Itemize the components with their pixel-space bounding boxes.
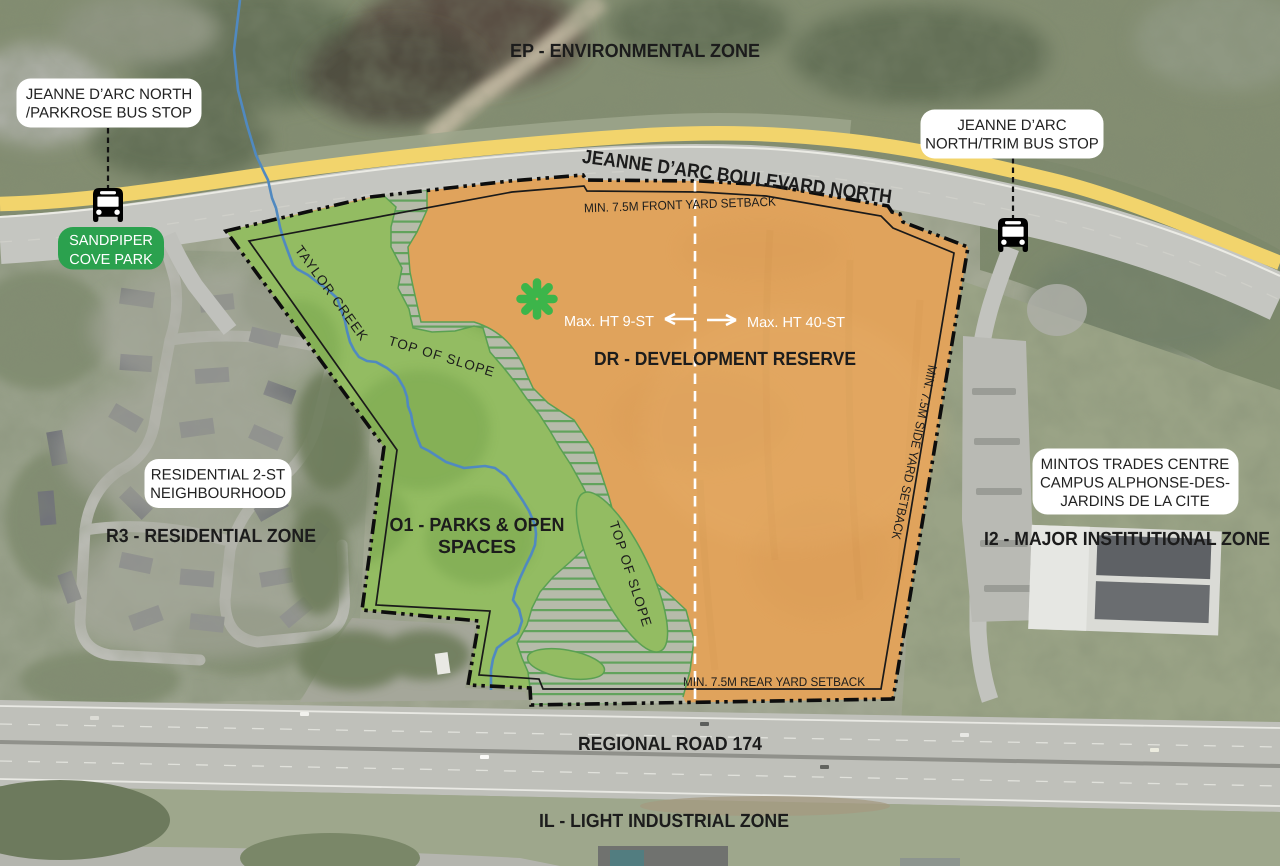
svg-text:NORTH/TRIM BUS STOP: NORTH/TRIM BUS STOP <box>925 136 1099 153</box>
svg-text:JEANNE D’ARC: JEANNE D’ARC <box>957 117 1066 134</box>
svg-text:DR - DEVELOPMENT RESERVE: DR - DEVELOPMENT RESERVE <box>594 349 856 370</box>
svg-text:O1 - PARKS & OPEN: O1 - PARKS & OPEN <box>390 515 565 536</box>
svg-text:EP - ENVIRONMENTAL ZONE: EP - ENVIRONMENTAL ZONE <box>510 41 760 62</box>
svg-text:CAMPUS ALPHONSE-DES-: CAMPUS ALPHONSE-DES- <box>1040 475 1230 492</box>
svg-text:MIN. 7.5M REAR YARD SETBACK: MIN. 7.5M REAR YARD SETBACK <box>683 675 866 689</box>
svg-text:SPACES: SPACES <box>438 537 516 558</box>
svg-text:I2 - MAJOR INSTITUTIONAL ZONE: I2 - MAJOR INSTITUTIONAL ZONE <box>984 529 1270 550</box>
svg-text:SANDPIPER: SANDPIPER <box>69 233 153 249</box>
svg-text:NEIGHBOURHOOD: NEIGHBOURHOOD <box>150 485 286 502</box>
svg-text:R3 - RESIDENTIAL ZONE: R3 - RESIDENTIAL ZONE <box>106 526 316 547</box>
svg-text:/PARKROSE BUS STOP: /PARKROSE BUS STOP <box>26 105 192 122</box>
svg-text:IL - LIGHT INDUSTRIAL ZONE: IL - LIGHT INDUSTRIAL ZONE <box>539 811 789 832</box>
svg-text:Max. HT 40-ST: Max. HT 40-ST <box>747 315 845 331</box>
svg-text:JEANNE D’ARC NORTH: JEANNE D’ARC NORTH <box>26 86 192 103</box>
svg-text:RESIDENTIAL 2-ST: RESIDENTIAL 2-ST <box>151 467 285 484</box>
svg-text:REGIONAL ROAD 174: REGIONAL ROAD 174 <box>578 734 762 755</box>
svg-text:MINTOS TRADES CENTRE: MINTOS TRADES CENTRE <box>1041 456 1230 473</box>
svg-text:COVE PARK: COVE PARK <box>69 252 153 268</box>
svg-text:JARDINS DE LA CITE: JARDINS DE LA CITE <box>1060 493 1209 510</box>
svg-text:Max. HT 9-ST: Max. HT 9-ST <box>564 314 654 330</box>
